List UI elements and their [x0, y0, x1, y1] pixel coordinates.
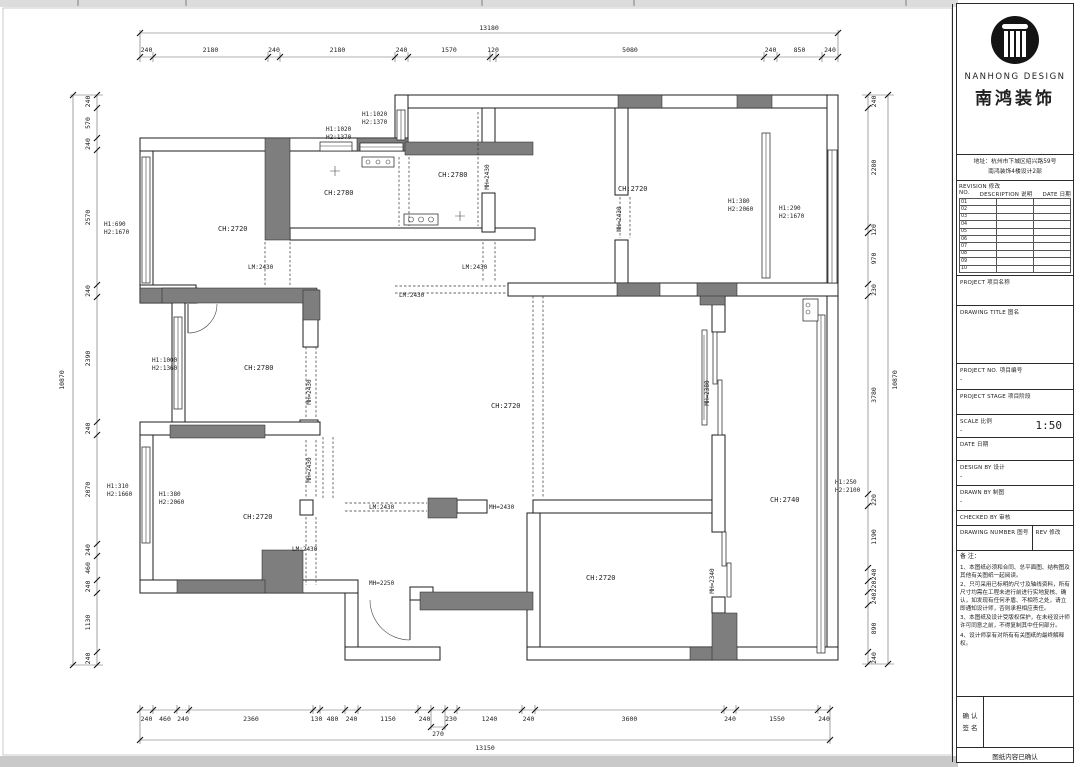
- project-no-label: PROJECT NO. 项目编号: [960, 366, 1070, 374]
- rev-desc: [997, 243, 1034, 250]
- window-label: H1:310: [107, 483, 129, 490]
- dim-label: 230: [445, 715, 457, 723]
- revision-row: 08: [960, 250, 1071, 257]
- dim-label: 240: [818, 715, 830, 723]
- rev-no: 02: [960, 206, 997, 213]
- rev-desc: [997, 265, 1034, 272]
- rev-date: [1034, 265, 1071, 272]
- address-line-1: 地址：杭州市下城区绍兴路59号: [960, 157, 1070, 167]
- opening-label: MH=2430: [306, 379, 313, 405]
- window-label: H1:1000: [152, 357, 178, 364]
- dim-label: 1570: [441, 46, 457, 54]
- window-label: H2:2060: [159, 499, 185, 506]
- room-label-cloakroom: CH:2780: [324, 189, 354, 197]
- revision-row: 01: [960, 199, 1071, 206]
- scale-section: SCALE 比例 - 1:50: [957, 414, 1073, 437]
- dim-label: 240: [141, 715, 153, 723]
- rev-date: [1034, 243, 1071, 250]
- notes-title: 备 注：: [960, 553, 1070, 562]
- window-glyph: [142, 157, 150, 283]
- project-label: PROJECT 项目名称: [960, 278, 1070, 286]
- rev-date: [1034, 235, 1071, 242]
- dim-label: 240: [141, 46, 153, 54]
- revision-row: 06: [960, 235, 1071, 242]
- dim-label: 240: [870, 593, 878, 605]
- design-by-label: DESIGN BY 设计: [960, 463, 1070, 471]
- dim-chain-top: 13180 240 2180 240 2180 240 1570 120 508…: [137, 24, 841, 62]
- window-label: H2:1660: [107, 491, 133, 498]
- design-by-section: DESIGN BY 设计 -: [957, 460, 1073, 485]
- sheet-border: [3, 8, 952, 755]
- window-label: H2:1370: [362, 119, 388, 126]
- drawn-by-value: -: [960, 498, 1070, 505]
- rev-desc: [997, 258, 1034, 265]
- dim-total: 13150: [475, 744, 495, 752]
- dim-label: 240: [724, 715, 736, 723]
- room-label-living-room: CH:2720: [491, 402, 521, 410]
- opening-label: MH=2430: [306, 457, 313, 483]
- brand-section: NANHONG DESIGN 南鸿装饰: [957, 4, 1073, 154]
- dim-label: 2070: [84, 482, 92, 498]
- drawing-sheet: 13180 240 2180 240 2180 240 1570 120 508…: [0, 0, 1080, 767]
- window-glyph: [320, 142, 352, 151]
- window-glyph: [762, 133, 770, 278]
- dim-label: 240: [84, 285, 92, 297]
- dim-label: 460: [84, 562, 92, 574]
- drawing-number-section: DRAWING NUMBER 图号 REV 修改: [957, 525, 1073, 550]
- dim-total: 13180: [479, 24, 499, 32]
- dim-label: 240: [870, 96, 878, 108]
- confirm-section: 确 认 签 名 图纸内容已确认: [957, 696, 1073, 760]
- revision-row: 02: [960, 206, 1071, 213]
- dim-label: 240: [177, 715, 189, 723]
- rev-label: REV 修改: [1036, 530, 1061, 536]
- dim-label: 480: [327, 715, 339, 723]
- rev-no: 09: [960, 258, 997, 265]
- col-desc: DESCRIPTION 说明: [980, 190, 1033, 198]
- dim-label: 220: [870, 494, 878, 506]
- room-label-bedroom2: CH:2720: [618, 185, 648, 193]
- dim-label: 3780: [870, 387, 878, 403]
- window-glyph: [360, 143, 403, 151]
- opening-label: MH=2430: [484, 164, 491, 190]
- dim-chain-bottom: 13150 270 240 460 240 2360 130 480 240 1…: [137, 705, 833, 752]
- ceiling-cross-icon: [330, 166, 340, 176]
- sliding-door-upper: [713, 332, 722, 435]
- checked-by-label: CHECKED BY 审核: [960, 513, 1070, 521]
- dim-label: 1240: [482, 715, 498, 723]
- top-margin-band: [0, 0, 958, 7]
- dim-label: 120: [487, 46, 499, 54]
- room-label-study: CH:2780: [244, 364, 274, 372]
- dim-label: 240: [84, 653, 92, 665]
- opening-label: MH=2340: [709, 568, 716, 594]
- confirm-sign-label: 确 认 签 名: [957, 697, 984, 747]
- revision-table: 01 02 03 04 05 06 07 08 09 10: [959, 198, 1071, 273]
- drawing-title-label: DRAWING TITLE 图名: [960, 308, 1070, 316]
- col-no: NO.: [959, 190, 970, 198]
- opening-label: LM:2430: [399, 292, 425, 299]
- scale-dash: -: [960, 427, 962, 434]
- rev-date: [1034, 199, 1071, 206]
- ceiling-cross-icon: [455, 211, 465, 221]
- rev-date: [1034, 258, 1071, 265]
- lock-detail-glyph: [803, 299, 818, 321]
- dim-label: 3600: [622, 715, 638, 723]
- dim-label: 240: [268, 46, 280, 54]
- rev-date: [1034, 206, 1071, 213]
- window-glyph: [828, 150, 837, 283]
- title-block-divider: [952, 4, 953, 762]
- note-line: 4、设计师享有对所有有关图纸的最终解释权。: [960, 632, 1070, 648]
- project-no-value: -: [960, 376, 1070, 383]
- radiator-glyph: [702, 330, 707, 425]
- rev-no: 08: [960, 250, 997, 257]
- dim-label: 220: [870, 581, 878, 593]
- brand-name-en: NANHONG DESIGN: [960, 72, 1070, 82]
- rev-desc: [997, 199, 1034, 206]
- rev-date: [1034, 250, 1071, 257]
- dim-label: 1550: [769, 715, 785, 723]
- room-label-balcony: CH:2740: [770, 496, 800, 504]
- rev-desc: [997, 206, 1034, 213]
- confirm-label-line1: 确 认: [962, 710, 977, 722]
- dim-chain-left: 10870 240 570 240 2570 240 2390 240 2070…: [58, 92, 103, 668]
- rev-no: 06: [960, 235, 997, 242]
- project-section: PROJECT 项目名称: [957, 275, 1073, 305]
- dim-label: 240: [419, 715, 431, 723]
- sliding-door-lower: [722, 532, 731, 597]
- window-label: H1:290: [779, 205, 801, 212]
- revision-columns: NO. DESCRIPTION 说明 DATE 日期: [959, 190, 1071, 198]
- window-label: H2:1370: [326, 134, 352, 141]
- col-date: DATE 日期: [1043, 190, 1071, 198]
- window-label: H1:380: [728, 198, 750, 205]
- rev-date: [1034, 221, 1071, 228]
- revision-section: REVISION 修改 NO. DESCRIPTION 说明 DATE 日期 0…: [957, 180, 1073, 275]
- drawn-by-section: DRAWN BY 制图 -: [957, 485, 1073, 510]
- dim-label: 5080: [622, 46, 638, 54]
- dim-total: 10870: [891, 370, 899, 390]
- dim-label: 970: [870, 253, 878, 265]
- gray-walls-group: [140, 95, 772, 660]
- dim-label: 1150: [380, 715, 396, 723]
- opening-label: LM:2430: [462, 264, 488, 271]
- dim-label: 230: [870, 284, 878, 296]
- dim-label: 1130: [84, 615, 92, 631]
- dim-label: 460: [159, 715, 171, 723]
- nanhong-logo-icon: [989, 14, 1041, 66]
- rev-desc: [997, 235, 1034, 242]
- dim-label: 120: [870, 224, 878, 236]
- project-stage-label: PROJECT STAGE 项目阶段: [960, 392, 1070, 400]
- dim-label: 2180: [203, 46, 219, 54]
- revision-row: 04: [960, 221, 1071, 228]
- rev-no: 04: [960, 221, 997, 228]
- opening-label: MH=2430: [489, 504, 515, 511]
- rev-desc: [997, 213, 1034, 220]
- dim-total: 10870: [58, 370, 66, 390]
- dim-label: 240: [346, 715, 358, 723]
- dim-label: 2280: [870, 160, 878, 176]
- revision-title: REVISION 修改: [959, 182, 1071, 190]
- dim-label: 570: [84, 117, 92, 129]
- dim-label: 890: [870, 623, 878, 635]
- window-label: H2:1670: [104, 229, 130, 236]
- brand-name-cn: 南鸿装饰: [960, 84, 1070, 109]
- confirm-note: 图纸内容已确认: [957, 747, 1073, 764]
- window-label: H1:690: [104, 221, 126, 228]
- rev-date: [1034, 213, 1071, 220]
- windows-group: [142, 110, 837, 653]
- window-label: H2:2100: [835, 487, 861, 494]
- dim-label: 130: [311, 715, 323, 723]
- cabinet-glyph: [362, 157, 394, 167]
- drawn-by-label: DRAWN BY 制图: [960, 488, 1070, 496]
- room-label-bedroom4: CH:2720: [586, 574, 616, 582]
- window-glyph: [397, 110, 405, 140]
- dim-label: 240: [870, 569, 878, 581]
- window-label: H1:1020: [326, 126, 352, 133]
- date-section: DATE 日期: [957, 437, 1073, 460]
- room-label-kitchen: CH:2780: [438, 171, 468, 179]
- window-label: H1:250: [835, 479, 857, 486]
- dim-label: 850: [794, 46, 806, 54]
- dim-label: 240: [396, 46, 408, 54]
- notes-section: 备 注： 1、本图纸必须和合同、总平面图、结构图及其他有关图纸一起阅读。 2、只…: [957, 550, 1073, 696]
- window-glyph: [817, 315, 825, 653]
- confirm-label-line2: 签 名: [962, 722, 977, 734]
- dim-label: 240: [523, 715, 535, 723]
- window-label: H1:380: [159, 491, 181, 498]
- dim-chain-right: 10870 240 2280 120 970 230 3780 220 1190…: [862, 92, 899, 667]
- title-block: NANHONG DESIGN 南鸿装饰 地址：杭州市下城区绍兴路59号 南鸿装饰…: [956, 3, 1074, 763]
- drawing-number-label: DRAWING NUMBER 图号: [960, 530, 1029, 536]
- checked-by-section: CHECKED BY 审核: [957, 510, 1073, 525]
- window-label: H2:2060: [728, 206, 754, 213]
- design-by-value: -: [960, 473, 1070, 480]
- bottom-margin-band: [0, 756, 958, 767]
- opening-label: LM:2430: [369, 504, 395, 511]
- dim-label: 2390: [84, 351, 92, 367]
- window-label: H1:1020: [362, 111, 388, 118]
- drawing-title-section: DRAWING TITLE 图名: [957, 305, 1073, 363]
- rev-no: 05: [960, 228, 997, 235]
- rev-date: [1034, 228, 1071, 235]
- dim-label: 2360: [243, 715, 259, 723]
- dim-label: 240: [84, 423, 92, 435]
- room-label-bedroom3: CH:2720: [243, 513, 273, 521]
- opening-label: LM:2430: [292, 546, 318, 553]
- rev-no: 07: [960, 243, 997, 250]
- entry-door: [370, 600, 410, 640]
- dim-label: 240: [765, 46, 777, 54]
- window-label: H2:1360: [152, 365, 178, 372]
- address-section: 地址：杭州市下城区绍兴路59号 南鸿装饰4楼设计2部: [957, 154, 1073, 180]
- dim-sub: 270: [432, 730, 444, 738]
- room-label-bedroom1: CH:2720: [218, 225, 248, 233]
- rev-no: 10: [960, 265, 997, 272]
- dim-label: 2180: [330, 46, 346, 54]
- opening-label: MH=2430: [616, 206, 623, 232]
- rev-desc: [997, 250, 1034, 257]
- opening-label: MH=2250: [369, 580, 395, 587]
- revision-row: 09: [960, 258, 1071, 265]
- window-labels-group: H1:1020 H2:1370 H1:1020 H2:1370 H1:690 H…: [104, 111, 861, 506]
- window-glyph: [142, 447, 150, 543]
- dim-label: 240: [870, 652, 878, 664]
- revision-row: 05: [960, 228, 1071, 235]
- window-label: H2:1670: [779, 213, 805, 220]
- rev-no: 03: [960, 213, 997, 220]
- rev-no: 01: [960, 199, 997, 206]
- note-line: 1、本图纸必须和合同、总平面图、结构图及其他有关图纸一起阅读。: [960, 564, 1070, 580]
- dim-label: 240: [84, 544, 92, 556]
- project-stage-section: PROJECT STAGE 项目阶段: [957, 389, 1073, 414]
- rev-desc: [997, 221, 1034, 228]
- note-line: 2、只可采用已标明的尺寸及轴线资料，所有尺寸均需在工程未进行前进行实地复核、确认…: [960, 581, 1070, 613]
- project-no-section: PROJECT NO. 项目编号 -: [957, 363, 1073, 389]
- revision-row: 10: [960, 265, 1071, 272]
- dim-label: 2570: [84, 210, 92, 226]
- floor-plan-canvas: 13180 240 2180 240 2180 240 1570 120 508…: [0, 0, 958, 767]
- date-label: DATE 日期: [960, 440, 1070, 448]
- dim-label: 240: [84, 96, 92, 108]
- study-door: [188, 304, 217, 333]
- note-line: 3、本图纸及设计受版权保护，在未经设计师许可同意之前，不得复制其中任何部分。: [960, 614, 1070, 630]
- dim-label: 240: [84, 138, 92, 150]
- revision-row: 03: [960, 213, 1071, 220]
- dim-label: 1190: [870, 529, 878, 545]
- revision-row: 07: [960, 243, 1071, 250]
- opening-label: MH=2380: [704, 380, 711, 406]
- dim-label: 240: [84, 581, 92, 593]
- opening-label: LM:2430: [248, 264, 274, 271]
- rev-desc: [997, 228, 1034, 235]
- dim-label: 240: [824, 46, 836, 54]
- address-line-2: 南鸿装饰4楼设计2部: [960, 167, 1070, 177]
